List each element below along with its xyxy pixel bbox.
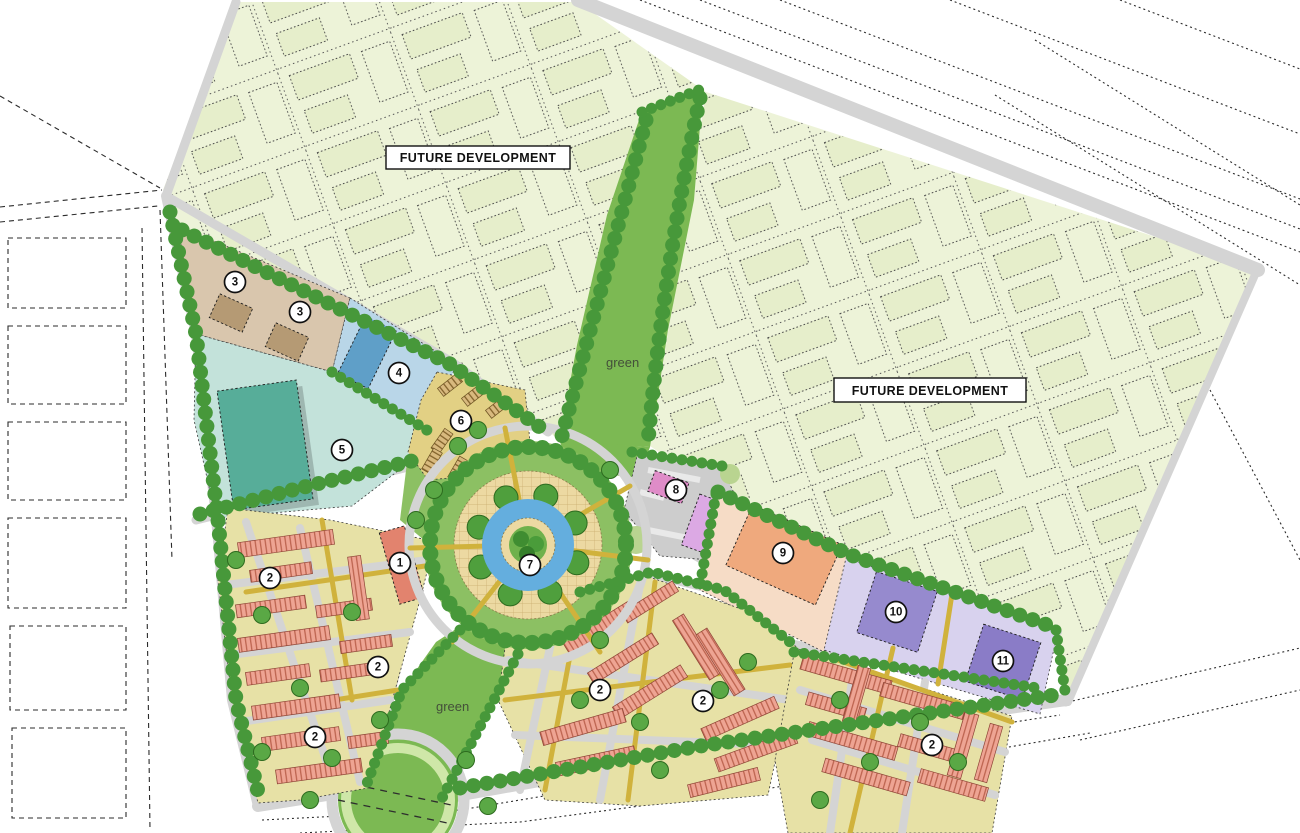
future-development-west-text: FUTURE DEVELOPMENT <box>400 151 557 165</box>
zone-marker-2: 2 <box>368 657 389 678</box>
zone-marker-number: 2 <box>312 732 318 744</box>
tree-icon <box>408 512 425 529</box>
tree-icon <box>450 438 467 455</box>
tree-icon <box>470 422 487 439</box>
tree-icon <box>572 692 589 709</box>
zone-marker-9: 9 <box>773 543 794 564</box>
tree-icon <box>426 482 443 499</box>
tree-icon <box>912 714 929 731</box>
zone-marker-number: 2 <box>700 696 706 708</box>
tree-icon <box>302 792 319 809</box>
tree-icon <box>950 754 967 771</box>
zone-marker-number: 9 <box>780 548 786 560</box>
site-plan-canvas: FUTURE DEVELOPMENT FUTURE DEVELOPMENT gr… <box>0 0 1300 833</box>
zone-marker-number: 2 <box>375 662 381 674</box>
zone-marker-number: 1 <box>397 558 404 570</box>
tree-icon <box>712 682 729 699</box>
green-corridor-label: green <box>606 355 639 370</box>
zone-marker-number: 11 <box>997 656 1010 668</box>
zone-marker-number: 3 <box>297 307 303 319</box>
tree-icon <box>652 762 669 779</box>
tree-icon <box>862 754 879 771</box>
tree-icon <box>592 632 609 649</box>
zone-marker-2: 2 <box>260 568 281 589</box>
zone-marker-3: 3 <box>225 272 246 293</box>
zone-marker-number: 7 <box>527 560 533 572</box>
zone-marker-2: 2 <box>922 735 943 756</box>
zone-marker-4: 4 <box>389 363 410 384</box>
tree-icon <box>292 680 309 697</box>
tree-icon <box>602 462 619 479</box>
future-development-east-text: FUTURE DEVELOPMENT <box>852 384 1009 398</box>
site-plan-map: FUTURE DEVELOPMENT FUTURE DEVELOPMENT gr… <box>0 0 1300 833</box>
zone-marker-1: 1 <box>390 553 411 574</box>
zone-marker-number: 2 <box>267 573 273 585</box>
zone-marker-8: 8 <box>666 480 687 501</box>
future-development-east-label: FUTURE DEVELOPMENT <box>834 378 1026 402</box>
zone-marker-number: 6 <box>458 416 464 428</box>
tree-icon <box>372 712 389 729</box>
tree-icon <box>254 744 271 761</box>
zone-marker-5: 5 <box>332 440 353 461</box>
zone-marker-number: 10 <box>890 607 903 619</box>
tree-icon <box>740 654 757 671</box>
zone-marker-6: 6 <box>451 411 472 432</box>
zone-marker-7: 7 <box>520 555 541 576</box>
green-south-label: green <box>436 699 469 714</box>
tree-icon <box>832 692 849 709</box>
zone-marker-3: 3 <box>290 302 311 323</box>
tree-icon <box>812 792 829 809</box>
zone-marker-11: 11 <box>993 651 1014 672</box>
tree-icon <box>632 714 649 731</box>
zone-marker-number: 5 <box>339 445 346 457</box>
zone-marker-number: 4 <box>396 368 403 380</box>
tree-icon <box>480 798 497 815</box>
tree-icon <box>324 750 341 767</box>
zone-marker-number: 2 <box>929 740 935 752</box>
zone-marker-2: 2 <box>590 680 611 701</box>
tree-icon <box>458 752 475 769</box>
tree-icon <box>254 607 271 624</box>
zone-marker-10: 10 <box>886 602 907 623</box>
tree-icon <box>344 604 361 621</box>
park-center-tree-1 <box>513 531 529 547</box>
zone-marker-number: 3 <box>232 277 238 289</box>
zone-marker-2: 2 <box>693 691 714 712</box>
context-west-parcels <box>0 96 172 830</box>
zone-marker-number: 2 <box>597 685 603 697</box>
zone-marker-2: 2 <box>305 727 326 748</box>
zone-marker-number: 8 <box>673 485 680 497</box>
future-development-west-label: FUTURE DEVELOPMENT <box>386 146 570 169</box>
tree-icon <box>228 552 245 569</box>
